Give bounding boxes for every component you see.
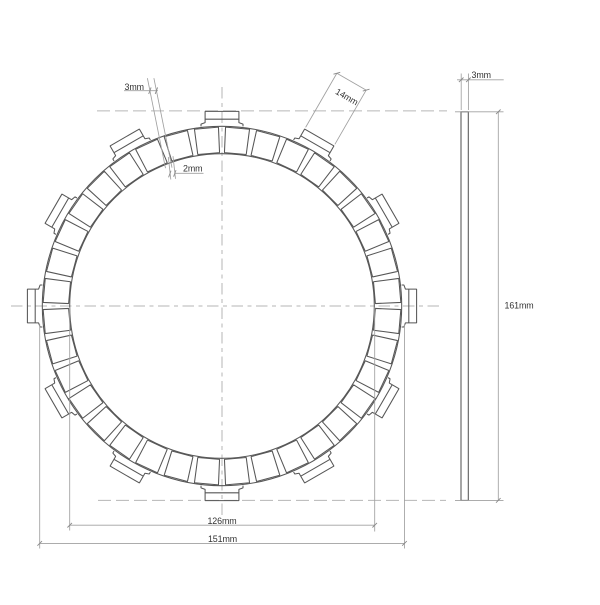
svg-text:3mm: 3mm xyxy=(472,70,491,80)
svg-text:161mm: 161mm xyxy=(505,300,534,310)
svg-text:2mm: 2mm xyxy=(183,164,202,174)
svg-text:3mm: 3mm xyxy=(125,82,144,92)
svg-text:151mm: 151mm xyxy=(208,534,237,544)
svg-text:126mm: 126mm xyxy=(207,516,236,526)
